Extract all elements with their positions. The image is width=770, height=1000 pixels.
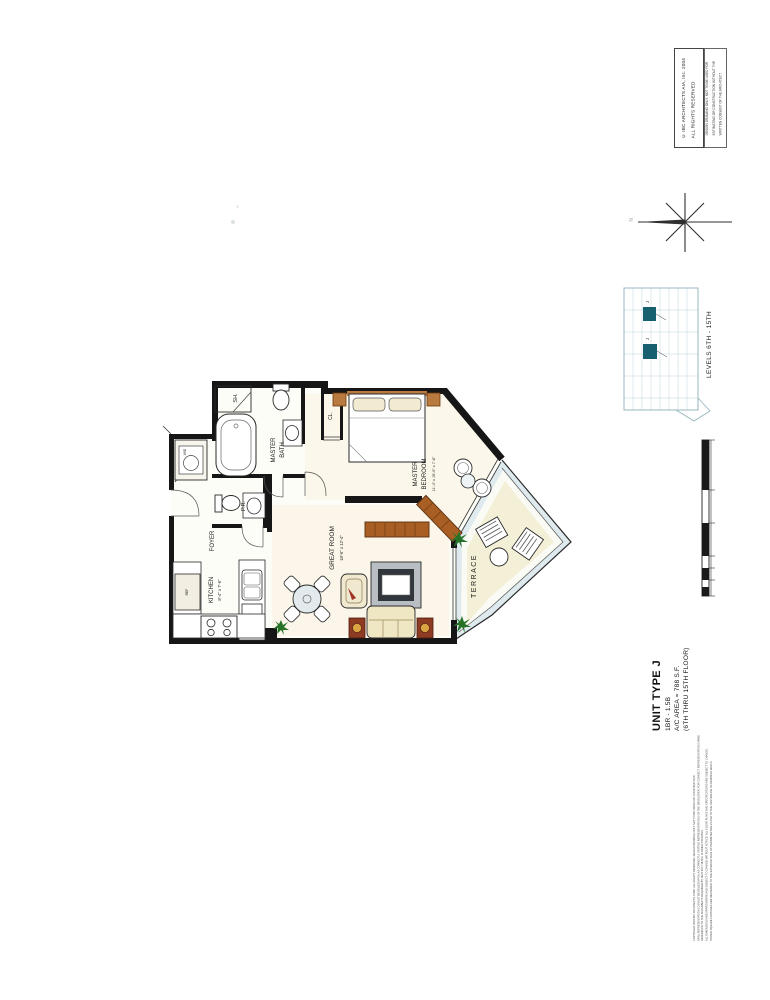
fine-print-line: ALL DIMENSIONS ARE APPROXIMATE AND SUBJE… bbox=[706, 727, 710, 941]
graphic-scale-bar bbox=[700, 438, 718, 606]
great-room-dims: 18'-6" x 12'-4" bbox=[339, 535, 344, 561]
floor-plan: W/D REF DW bbox=[155, 376, 575, 664]
keyplan-grid bbox=[624, 288, 698, 410]
stove bbox=[201, 616, 237, 638]
compass-west-ray bbox=[638, 220, 685, 225]
bedroom-label: MASTER bbox=[413, 461, 419, 487]
copyright-text: © IBC ARCHITECTS AIA, Inc. 2004 ALL RIGH… bbox=[680, 58, 699, 138]
fine-print-line: ORAL REPRESENTATIONS CANNOT BE RELIED UP… bbox=[698, 727, 705, 941]
copyright-line1: © IBC ARCHITECTS AIA, Inc. 2004 bbox=[680, 58, 687, 138]
ref-label: REF bbox=[185, 589, 189, 596]
keyplan-leader bbox=[656, 314, 666, 320]
pillow bbox=[353, 398, 385, 411]
master-bath-label: MASTER bbox=[271, 437, 277, 463]
keyplan-wing bbox=[676, 398, 710, 421]
area-line: A/C AREA = 788 S.F. bbox=[674, 611, 681, 731]
keyplan-unit-highlight bbox=[643, 344, 657, 359]
kitchen-label: KITCHEN bbox=[209, 577, 215, 603]
nightstand bbox=[333, 393, 346, 406]
unit-type-title: UNIT TYPE J bbox=[651, 611, 663, 731]
keyplan-unit-label: J bbox=[645, 338, 650, 340]
notice-line: ESTIMATING OR CONSTRUCTION WITHOUT THE bbox=[712, 61, 717, 135]
nook-chair bbox=[473, 479, 491, 497]
sofa bbox=[367, 606, 415, 638]
bedroom-dims: 11'-4" x 15'-0" x 7'-6" bbox=[432, 456, 436, 491]
notice-line: DESIGN DRAWING ONLY. NOT TO BE USED FOR bbox=[705, 61, 710, 135]
floors-line: (6TH THRU 15TH FLOOR) bbox=[683, 611, 690, 731]
powder-room-label: P.R. bbox=[241, 501, 247, 511]
design-notice-text: DESIGN DRAWING ONLY. NOT TO BE USED FOR … bbox=[705, 61, 725, 135]
tv-screen bbox=[382, 575, 410, 595]
keyplan-caption: LEVELS 6TH - 15TH bbox=[706, 294, 713, 378]
architectural-sheet: © IBC ARCHITECTS AIA, Inc. 2004 ALL RIGH… bbox=[0, 0, 770, 1000]
pr-toilet-icon bbox=[222, 496, 240, 511]
toilet-icon bbox=[273, 390, 289, 410]
shower-label: SH. bbox=[233, 393, 239, 403]
pillow bbox=[389, 398, 421, 411]
credenza bbox=[365, 522, 429, 537]
scan-speck bbox=[231, 220, 235, 224]
laundry-closet: W/D bbox=[175, 440, 207, 480]
keyplan-unit-highlight bbox=[643, 307, 656, 321]
pr-toilet-tank bbox=[215, 495, 222, 512]
north-mark: N bbox=[629, 218, 635, 222]
scale-bar-ticks bbox=[709, 440, 715, 596]
fine-print-line: COPYRIGHT 2004 IBC ARCHITECTS CORP. ALL … bbox=[693, 727, 697, 941]
scan-speck bbox=[236, 205, 239, 208]
copyright-stamp-box: © IBC ARCHITECTS AIA, Inc. 2004 ALL RIGH… bbox=[674, 48, 704, 148]
bed-bath-line: 1BR - 1.5B bbox=[665, 611, 672, 731]
key-plan: J J bbox=[618, 280, 714, 422]
keyplan-unit-label: J bbox=[645, 301, 650, 303]
title-block: UNIT TYPE J 1BR - 1.5B A/C AREA = 788 S.… bbox=[651, 611, 692, 731]
legal-fine-print: COPYRIGHT 2004 IBC ARCHITECTS CORP. ALL … bbox=[693, 727, 715, 941]
master-bath-label2: BATH bbox=[280, 442, 286, 458]
closet-label: CL. bbox=[328, 412, 334, 420]
terrace-table bbox=[490, 548, 508, 566]
kitchen-dims: 8'-4" x 7'-6" bbox=[217, 579, 222, 601]
fine-print-line: STATED SQUARE FOOTAGES ARE MEASURED TO T… bbox=[710, 727, 714, 941]
copyright-line2: ALL RIGHTS RESERVED bbox=[689, 58, 696, 138]
great-room-label: GREAT ROOM bbox=[329, 526, 336, 570]
foyer-label: FOYER bbox=[210, 530, 216, 551]
bedroom-label2: BEDROOM bbox=[422, 458, 428, 489]
nightstand bbox=[427, 393, 440, 406]
nook-table bbox=[461, 474, 475, 488]
bathtub bbox=[216, 414, 256, 476]
notice-line: WRITTEN CONSENT OF THE ARCHITECT bbox=[719, 61, 724, 135]
terrace-label: TERRACE bbox=[471, 554, 478, 598]
design-notice-box: DESIGN DRAWING ONLY. NOT TO BE USED FOR … bbox=[704, 48, 727, 148]
compass-rose bbox=[630, 186, 738, 260]
wd-label: W/D bbox=[183, 448, 187, 455]
